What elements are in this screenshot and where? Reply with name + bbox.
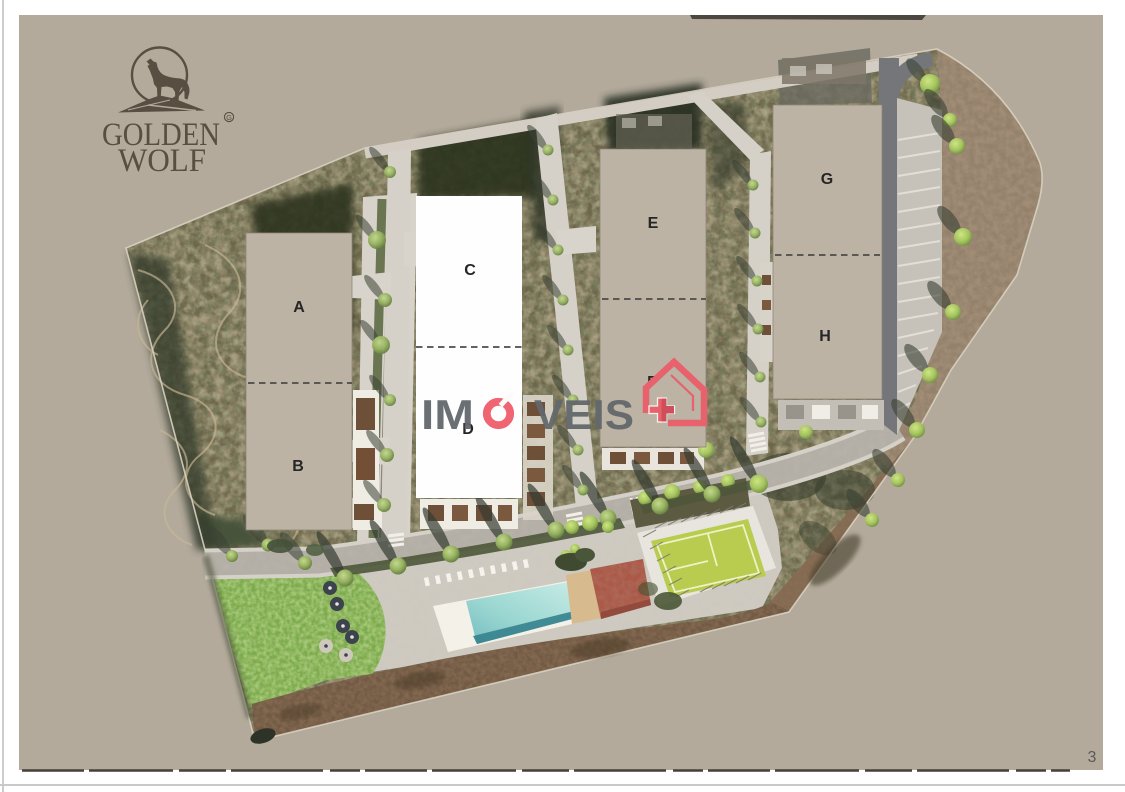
svg-text:A: A: [293, 299, 305, 316]
svg-text:G: G: [821, 171, 833, 188]
svg-text:VEIS: VEIS: [534, 391, 634, 438]
svg-text:WOLF: WOLF: [118, 143, 206, 179]
svg-text:C: C: [464, 262, 476, 279]
svg-text:B: B: [292, 458, 304, 475]
svg-text:IM: IM: [421, 391, 474, 438]
svg-text:E: E: [648, 215, 659, 232]
svg-text:3: 3: [1088, 749, 1097, 766]
svg-text:G: G: [226, 113, 232, 122]
svg-text:H: H: [819, 328, 831, 345]
